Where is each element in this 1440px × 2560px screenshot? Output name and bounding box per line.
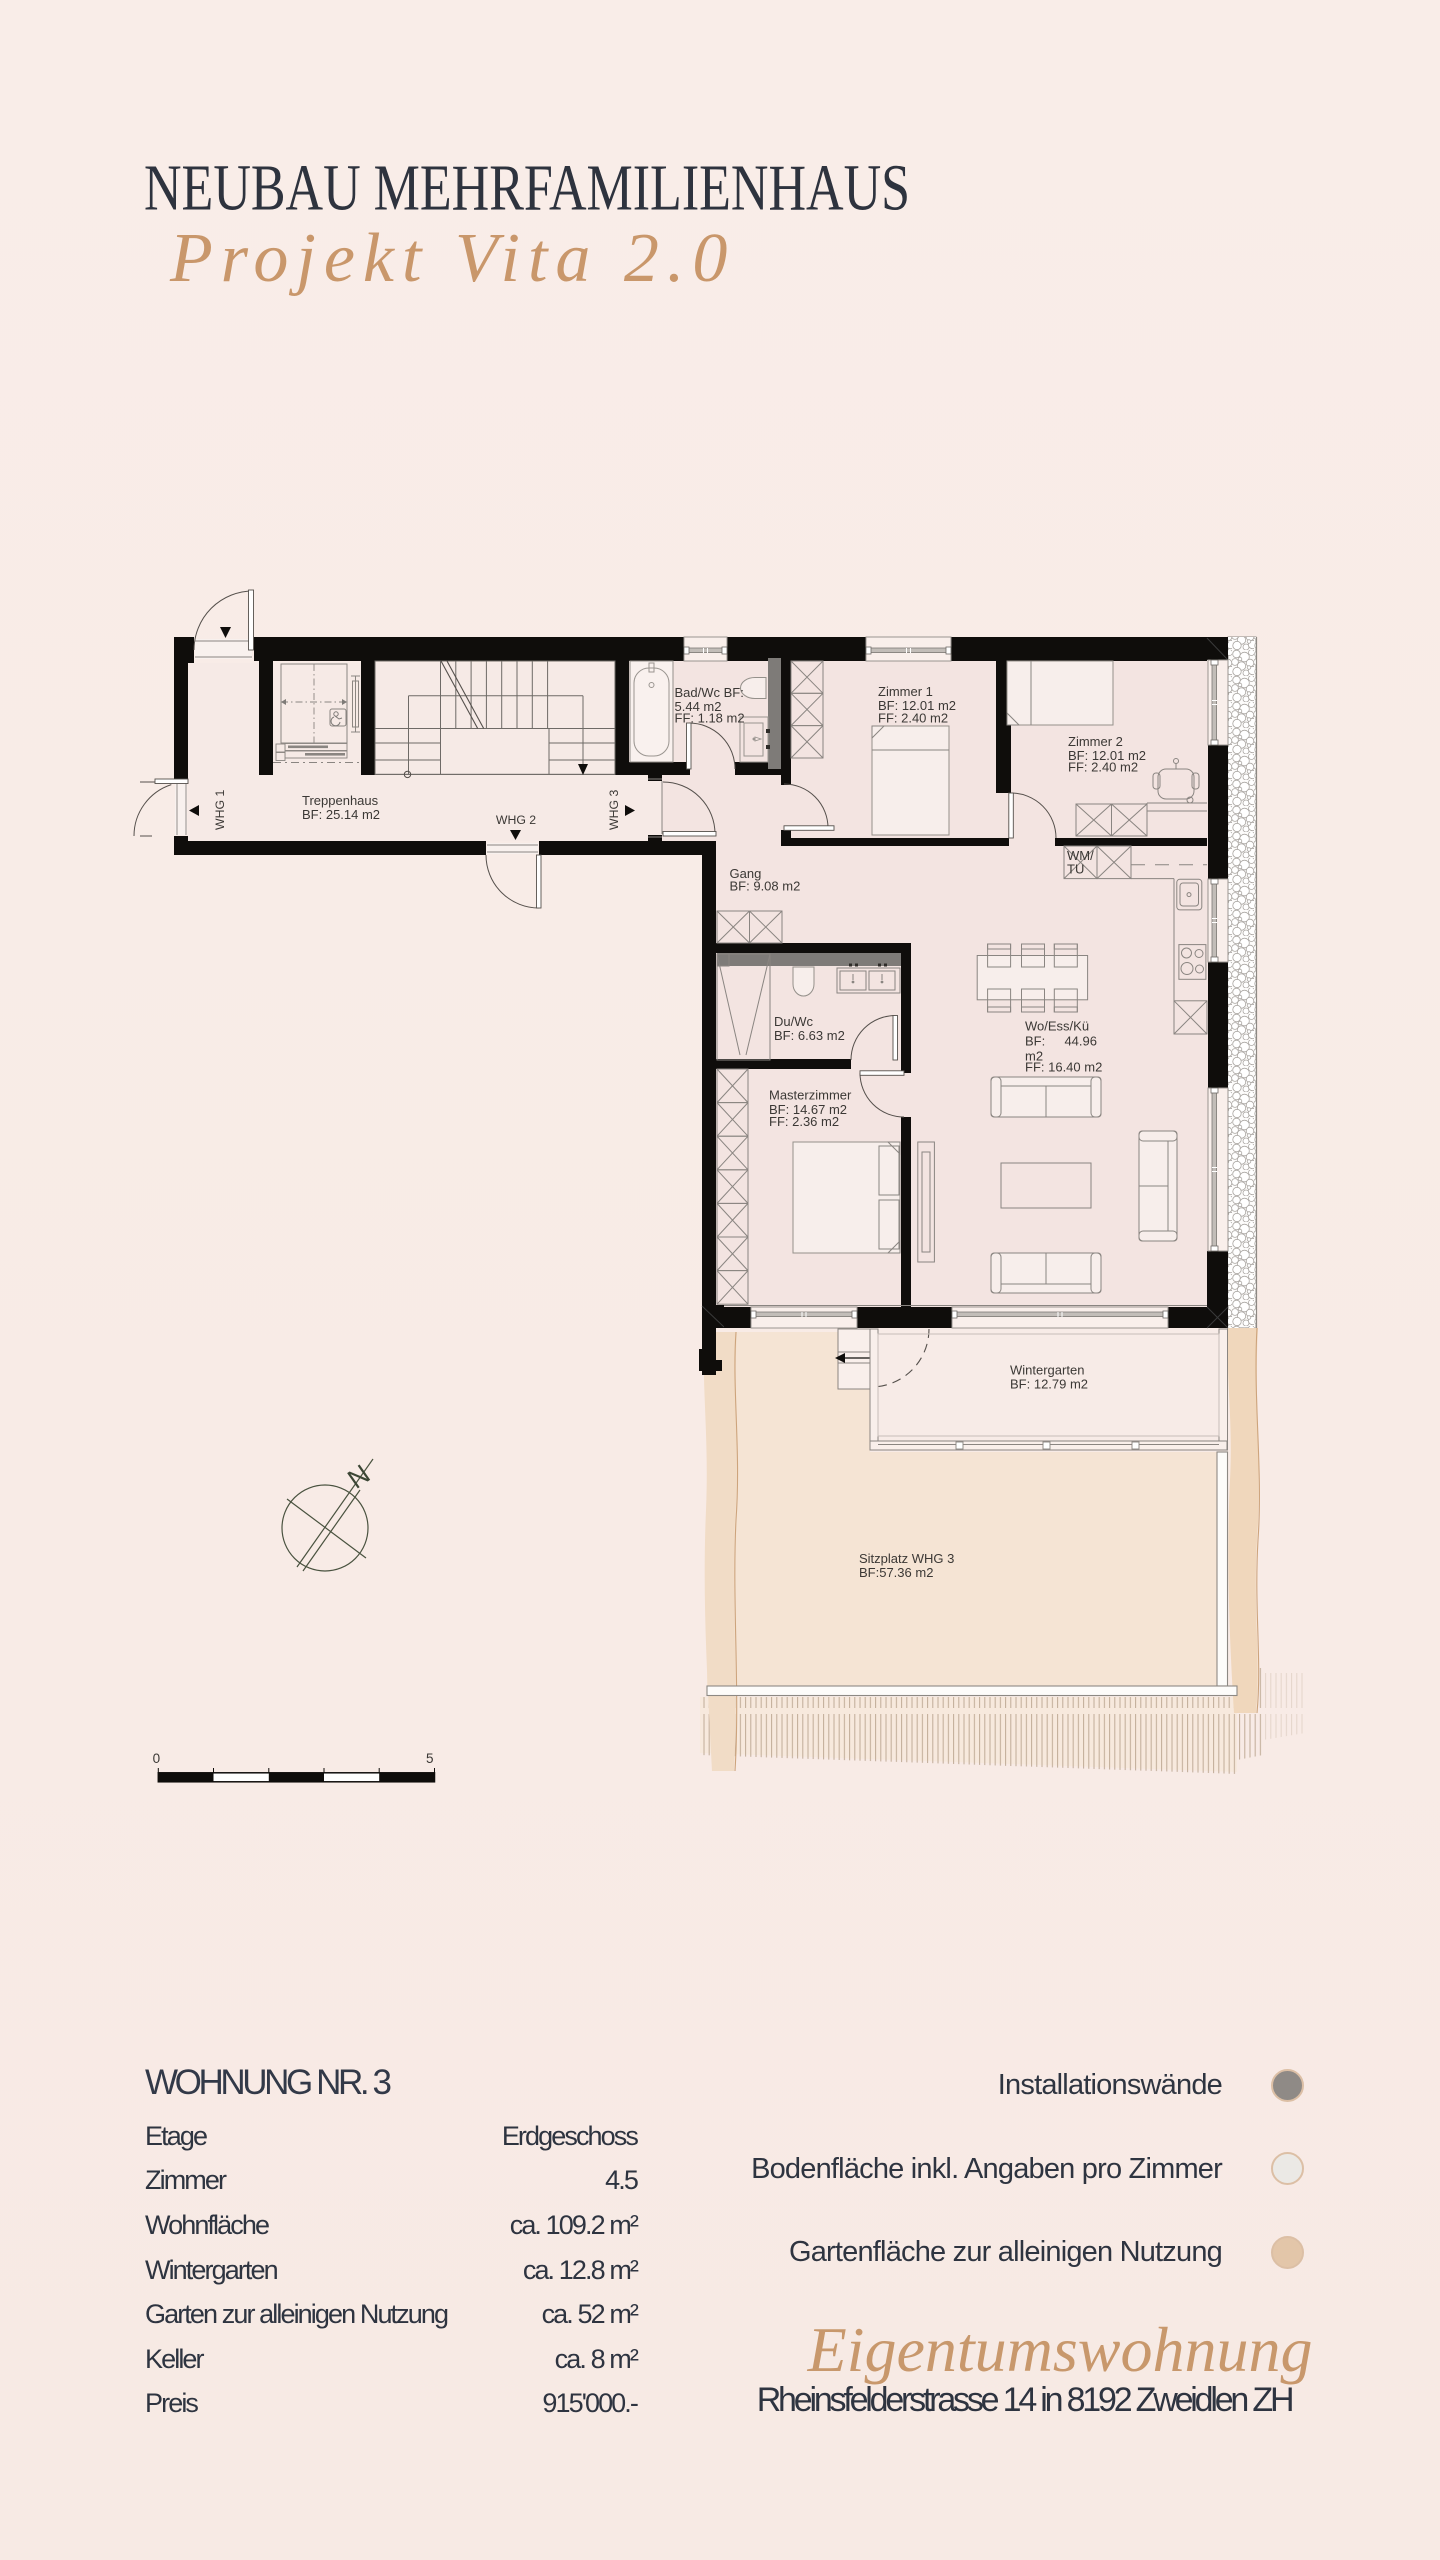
- svg-text:Wo/Ess/Kü: Wo/Ess/Kü: [1025, 1019, 1089, 1034]
- svg-text:BF: 25.14 m2: BF: 25.14 m2: [302, 807, 380, 822]
- svg-text:WHG 1: WHG 1: [213, 790, 227, 830]
- svg-text:FF: 1.18 m2: FF: 1.18 m2: [675, 711, 745, 726]
- svg-text:FF: 2.40 m2: FF: 2.40 m2: [878, 711, 948, 726]
- svg-text:BF:: BF:: [1025, 1034, 1045, 1049]
- svg-text:Treppenhaus: Treppenhaus: [302, 793, 379, 808]
- svg-text:Zimmer 1: Zimmer 1: [878, 684, 933, 699]
- svg-text:BF: 12.79 m2: BF: 12.79 m2: [1010, 1377, 1088, 1392]
- svg-text:Zimmer 2: Zimmer 2: [1068, 734, 1123, 749]
- svg-text:5: 5: [426, 1751, 434, 1766]
- svg-text:0: 0: [153, 1751, 161, 1766]
- svg-text:WHG 2: WHG 2: [496, 813, 536, 827]
- svg-text:Masterzimmer: Masterzimmer: [769, 1088, 852, 1103]
- svg-text:Bad/Wc BF:: Bad/Wc BF:: [675, 685, 744, 700]
- svg-text:44.96: 44.96: [1064, 1034, 1097, 1049]
- svg-text:FF: 2.40 m2: FF: 2.40 m2: [1068, 760, 1138, 775]
- svg-text:Wintergarten: Wintergarten: [1010, 1363, 1084, 1378]
- svg-text:FF: 16.40 m2: FF: 16.40 m2: [1025, 1060, 1102, 1075]
- svg-text:WHG 3: WHG 3: [607, 790, 621, 830]
- svg-text:TU: TU: [1067, 862, 1084, 877]
- svg-text:N: N: [342, 1459, 375, 1495]
- svg-text:BF: 6.63 m2: BF: 6.63 m2: [774, 1028, 845, 1043]
- svg-text:FF: 2.36 m2: FF: 2.36 m2: [769, 1114, 839, 1129]
- svg-text:BF: 9.08 m2: BF: 9.08 m2: [730, 879, 801, 894]
- svg-text:Sitzplatz WHG 3: Sitzplatz WHG 3: [859, 1551, 954, 1566]
- svg-text:BF:57.36 m2: BF:57.36 m2: [859, 1565, 933, 1580]
- svg-text:Du/Wc: Du/Wc: [774, 1014, 814, 1029]
